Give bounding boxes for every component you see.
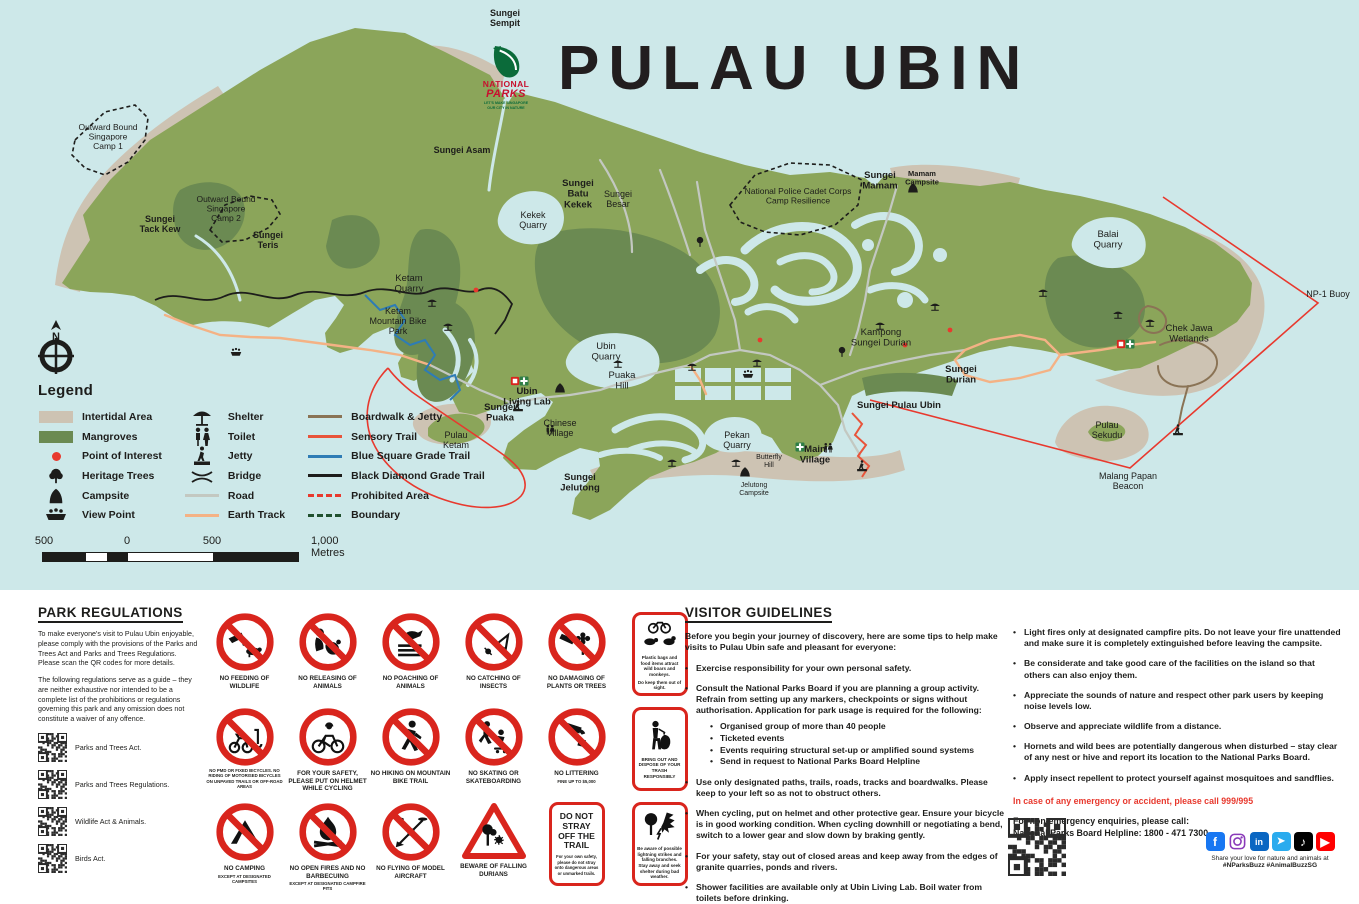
sign-label: NO LITTERING bbox=[554, 770, 598, 778]
scale-label-500-right: 500 bbox=[203, 535, 221, 547]
map-label: Sungei Asam bbox=[434, 145, 491, 155]
no-damaging-plants-sign: NO DAMAGING OF PLANTS OR TREES bbox=[535, 612, 618, 707]
sign-label: NO DAMAGING OF PLANTS OR TREES bbox=[537, 675, 617, 690]
map-label: Batu bbox=[567, 189, 588, 200]
road-line bbox=[184, 494, 220, 497]
legend-item: Campsite bbox=[38, 486, 162, 506]
sign-label: NO FEEDING OF WILDLIFE bbox=[205, 675, 285, 690]
qr-label: Birds Act. bbox=[75, 854, 105, 863]
legend-item-label: Toilet bbox=[228, 431, 255, 443]
map-label: Sungei bbox=[945, 364, 977, 375]
guideline-sub-item: Organised group of more than 40 people bbox=[710, 721, 1005, 733]
map-label: Sungei bbox=[253, 230, 283, 240]
linkedin-icon: in bbox=[1250, 832, 1269, 851]
map-label: Quarry bbox=[519, 220, 547, 230]
map-label: Campsite bbox=[905, 177, 939, 186]
guideline-item: Use only designated paths, trails, roads… bbox=[685, 777, 1005, 799]
social-caption: Share your love for nature and animals a… bbox=[1200, 855, 1340, 862]
instagram-icon bbox=[1228, 832, 1247, 851]
map-label: Kekek bbox=[564, 199, 593, 210]
falling-durians-warning-sign: BEWARE OF FALLING DURIANS bbox=[452, 802, 535, 897]
map-label: Sungei bbox=[484, 402, 516, 413]
park-regulations-title: PARK REGULATIONS bbox=[38, 605, 183, 623]
sign-label: NO FLYING OF MODEL AIRCRAFT bbox=[371, 865, 451, 880]
legend-item-label: Point of Interest bbox=[82, 450, 162, 462]
qr-code bbox=[38, 733, 67, 762]
lightning-trees-icon bbox=[640, 808, 680, 844]
map-label: Quarry bbox=[591, 352, 620, 363]
map-label: Butterfly bbox=[756, 454, 782, 461]
legend-item: View Point bbox=[38, 505, 162, 525]
guideline-item: Shower facilities are available only at … bbox=[685, 882, 1005, 904]
litter-icon bbox=[547, 707, 607, 767]
map-label: Outward Bound bbox=[78, 122, 137, 132]
legend-item-label: Intertidal Area bbox=[82, 411, 152, 423]
map-label: Hill bbox=[764, 462, 774, 469]
boardwalk-line bbox=[307, 415, 343, 418]
no-feeding-of-wildlife-sign: NO FEEDING OF WILDLIFE bbox=[203, 612, 286, 707]
legend-item-label: Shelter bbox=[228, 411, 264, 423]
no-catching-of-insects-sign: NO CATCHING OF INSECTS bbox=[452, 612, 535, 707]
guideline-item: Appreciate the sounds of nature and resp… bbox=[1013, 690, 1343, 712]
no-releasing-of-animals-sign: NO RELEASING OF ANIMALS bbox=[286, 612, 369, 707]
map-label: Sungei bbox=[490, 8, 520, 18]
catch-icon bbox=[464, 612, 524, 672]
map-label: Durian bbox=[946, 375, 976, 386]
map-label: Hill bbox=[615, 381, 628, 392]
guideline-item: For your safety, stay out of closed area… bbox=[685, 851, 1005, 873]
sign-sub-text: For your own safety, please do not stray… bbox=[555, 854, 599, 876]
legend-item: Boardwalk & Jetty bbox=[307, 407, 485, 427]
sign-sub-label: EXCEPT AT DESIGNATED CAMPFIRE PITS bbox=[289, 881, 367, 892]
logo-tagline-1: LET'S MAKE SINGAPORE bbox=[480, 101, 532, 105]
heritage-tree-icon bbox=[38, 467, 74, 485]
legend-item: Heritage Trees bbox=[38, 466, 162, 486]
map-label: Jelutong bbox=[741, 482, 768, 489]
campsite-icon bbox=[38, 487, 74, 505]
leaf-icon bbox=[489, 44, 523, 80]
qr-label: Parks and Trees Act. bbox=[75, 743, 141, 752]
legend-item-label: Boundary bbox=[351, 509, 400, 521]
qr-code-icon bbox=[38, 807, 67, 836]
sign-label: NO SKATING OR SKATEBOARDING bbox=[454, 770, 534, 785]
sign-text-box: DO NOT STRAY OFF THE TRAILFor your own s… bbox=[549, 802, 605, 886]
red-square-icon bbox=[511, 377, 519, 385]
map-label: Chek Jawa bbox=[1166, 323, 1214, 334]
map-label: Sungei Durian bbox=[851, 338, 911, 349]
map-label: Ketam bbox=[385, 306, 411, 316]
legend-item: Mangroves bbox=[38, 427, 162, 447]
social-media-block: fin➤♪▶ Share your love for nature and an… bbox=[1200, 832, 1340, 869]
do-not-stray-sign: DO NOT STRAY OFF THE TRAILFor your own s… bbox=[535, 802, 618, 897]
national-parks-logo: NATIONAL PARKS LET'S MAKE SINGAPORE OUR … bbox=[480, 44, 532, 110]
cyclist-icon bbox=[298, 707, 358, 767]
legend-item-label: Boardwalk & Jetty bbox=[351, 411, 442, 423]
map-label: NP-1 Buoy bbox=[1306, 289, 1350, 299]
shelter-icon bbox=[184, 408, 220, 426]
scale-bar-graphic bbox=[42, 552, 299, 562]
qr-code-icon bbox=[1008, 818, 1066, 876]
boar-monkey-icon bbox=[640, 617, 680, 653]
prohibition-signs-grid: NO FEEDING OF WILDLIFENO RELEASING OF AN… bbox=[203, 612, 701, 897]
map-label: Chinese bbox=[543, 418, 576, 428]
map-label: Jelutong bbox=[560, 483, 600, 494]
qr-label: Parks and Trees Regulations. bbox=[75, 780, 169, 789]
tent-icon bbox=[215, 802, 275, 862]
prohibited-area-line bbox=[307, 494, 343, 497]
legend-item-label: Black Diamond Grade Trail bbox=[351, 470, 485, 482]
regulation-qr-row: Wildlife Act & Animals. bbox=[38, 807, 200, 836]
qr-code-icon bbox=[38, 770, 67, 799]
map-label: Park bbox=[389, 326, 408, 336]
map-label: Beacon bbox=[1113, 481, 1144, 491]
guideline-item: When cycling, put on helmet and other pr… bbox=[685, 808, 1005, 842]
guideline-item: Observe and appreciate wildlife from a d… bbox=[1013, 721, 1343, 732]
regulations-paragraph-2: The following regulations serve as a gui… bbox=[38, 676, 200, 725]
damage-icon bbox=[547, 612, 607, 672]
logo-tagline-2: OUR CITY IN NATURE bbox=[480, 106, 532, 110]
no-model-aircraft-sign: NO FLYING OF MODEL AIRCRAFT bbox=[369, 802, 452, 897]
logo-text-parks: PARKS bbox=[480, 89, 532, 100]
park-regulations-section: PARK REGULATIONS To make everyone's visi… bbox=[38, 604, 200, 873]
map-label: Sungei bbox=[604, 189, 632, 199]
black-diamond-trail-line bbox=[307, 474, 343, 477]
map-label: Sungei bbox=[145, 214, 175, 224]
poi-dot bbox=[474, 288, 479, 293]
guideline-sub-item: Ticketed events bbox=[710, 733, 1005, 745]
map-label: Ubin bbox=[596, 341, 616, 352]
legend-item: Shelter bbox=[184, 407, 285, 427]
release-icon bbox=[298, 612, 358, 672]
no-hiking-sign: NO HIKING ON MOUNTAIN BIKE TRAIL bbox=[369, 707, 452, 802]
emergency-notice: In case of any emergency or accident, pl… bbox=[1013, 796, 1343, 806]
legend-item: Earth Track bbox=[184, 505, 285, 525]
qr-code bbox=[38, 807, 67, 836]
map-label: Outward Bound bbox=[196, 194, 255, 204]
map-label: Sempit bbox=[490, 18, 520, 28]
legend-item: Jetty bbox=[184, 446, 285, 466]
nparks-buzz-qr-code bbox=[1008, 818, 1066, 876]
helmet-advice-sign: FOR YOUR SAFETY, PLEASE PUT ON HELMET WH… bbox=[286, 707, 369, 802]
regulation-qr-row: Parks and Trees Regulations. bbox=[38, 770, 200, 799]
map-label: Camp Resilience bbox=[766, 196, 831, 206]
trash-person-icon bbox=[640, 719, 680, 755]
no-open-fires-sign: NO OPEN FIRES AND NO BARBECUINGEXCEPT AT… bbox=[286, 802, 369, 897]
map-label: Puaka bbox=[609, 370, 637, 381]
poi-dot bbox=[758, 338, 763, 343]
map-label: Singapore bbox=[207, 204, 246, 214]
map-label: Wetlands bbox=[1169, 334, 1209, 345]
skater-icon bbox=[464, 707, 524, 767]
pmd-icon bbox=[215, 707, 275, 767]
map-label: Sungei Pulau Ubin bbox=[857, 400, 941, 411]
legend-item: Point of Interest bbox=[38, 446, 162, 466]
toilet-icon bbox=[184, 427, 220, 447]
map-label: Sungei bbox=[864, 170, 896, 181]
fire-icon bbox=[298, 802, 358, 862]
advice-box: BRING OUT AND DISPOSE OF YOUR TRASH RESP… bbox=[632, 707, 688, 791]
map-label: Kampong bbox=[861, 327, 902, 338]
legend-item-label: Campsite bbox=[82, 490, 129, 502]
advice-box: Be aware of possible lightning strikes a… bbox=[632, 802, 688, 886]
telegram-icon: ➤ bbox=[1272, 832, 1291, 851]
visitor-guidelines-title: VISITOR GUIDELINES bbox=[685, 605, 832, 623]
guidelines-intro: Before you begin your journey of discove… bbox=[685, 631, 1005, 654]
sensory-trail-line bbox=[307, 435, 343, 438]
regulation-qr-row: Birds Act. bbox=[38, 844, 200, 873]
legend-item: Sensory Trail bbox=[307, 427, 485, 447]
red-square-icon bbox=[1117, 340, 1125, 348]
guideline-item: Consult the National Parks Board if you … bbox=[685, 683, 1005, 768]
bridge-icon bbox=[184, 468, 220, 484]
legend-item: Blue Square Grade Trail bbox=[307, 446, 485, 466]
sign-label: NO RELEASING OF ANIMALS bbox=[288, 675, 368, 690]
map-label: Campsite bbox=[739, 490, 769, 497]
map-label: Quarry bbox=[1093, 240, 1122, 251]
compass-north-icon: N bbox=[34, 318, 78, 378]
map-label: Puaka bbox=[486, 413, 515, 424]
map-label: Main bbox=[804, 444, 826, 455]
green-cross-icon bbox=[520, 377, 529, 386]
blue-square-trail-line bbox=[307, 455, 343, 458]
drone-icon bbox=[381, 802, 441, 862]
map-label: Kekek bbox=[520, 210, 546, 220]
hiker-icon bbox=[381, 707, 441, 767]
island-map: SungeiSempitOutward BoundSingaporeCamp 1… bbox=[0, 0, 1359, 590]
map-label: Mountain Bike bbox=[369, 316, 426, 326]
regulations-paragraph-1: To make everyone's visit to Pulau Ubin e… bbox=[38, 630, 200, 669]
visitor-guidelines-section: VISITOR GUIDELINES Before you begin your… bbox=[685, 604, 1005, 904]
guideline-sub-item: Send in request to National Parks Board … bbox=[710, 756, 1005, 768]
guideline-item: Hornets and wild bees are potentially da… bbox=[1013, 741, 1343, 763]
poi-dot bbox=[948, 328, 953, 333]
legend-item-label: Mangroves bbox=[82, 431, 137, 443]
sign-label: NO CAMPING bbox=[224, 865, 265, 873]
advice-text: Plastic bags and food items attract wild… bbox=[637, 655, 683, 678]
guideline-sub-item: Events requiring structural set-up or am… bbox=[710, 745, 1005, 757]
sign-label: NO POACHING OF ANIMALS bbox=[371, 675, 451, 690]
legend-item: Intertidal Area bbox=[38, 407, 162, 427]
map-label: Besar bbox=[606, 199, 630, 209]
qr-code bbox=[38, 770, 67, 799]
legend-item: Boundary bbox=[307, 505, 485, 525]
page-title: PULAU UBIN bbox=[558, 38, 1030, 100]
map-label: Pekan bbox=[724, 430, 750, 440]
legend-item-label: Road bbox=[228, 490, 254, 502]
social-hashtags: #NParksBuzz #AnimalBuzzSG bbox=[1200, 862, 1340, 869]
pulau-ubin-map-poster: { "title": "PULAU UBIN", "logo": {"line1… bbox=[0, 0, 1359, 895]
legend-item-label: Jetty bbox=[228, 450, 253, 462]
map-label: Singapore bbox=[89, 132, 128, 142]
legend-item-label: Earth Track bbox=[228, 509, 285, 521]
sign-sub-label: FINE UP TO $5,000 bbox=[557, 779, 595, 784]
tiktok-icon: ♪ bbox=[1294, 832, 1313, 851]
earth-track-line bbox=[184, 514, 220, 517]
scale-label-500-left: 500 bbox=[35, 535, 53, 547]
facebook-icon: f bbox=[1206, 832, 1225, 851]
map-label: Ketam bbox=[395, 273, 423, 284]
legend: Legend Intertidal AreaMangrovesPoint of … bbox=[38, 382, 368, 525]
map-label: Pulau bbox=[1095, 420, 1118, 430]
legend-item-label: Sensory Trail bbox=[351, 431, 417, 443]
map-label: Balai bbox=[1097, 229, 1118, 240]
sign-label: NO CATCHING OF INSECTS bbox=[454, 675, 534, 690]
map-header: NATIONAL PARKS LET'S MAKE SINGAPORE OUR … bbox=[480, 38, 1030, 110]
point-of-interest-icon bbox=[38, 452, 74, 461]
sign-sub-label: EXCEPT AT DESIGNATED CAMPSITES bbox=[206, 874, 284, 885]
map-label: Ubin bbox=[516, 386, 537, 397]
scale-label-0: 0 bbox=[124, 535, 130, 547]
map-label: Village bbox=[547, 428, 574, 438]
legend-item-label: Bridge bbox=[228, 470, 261, 482]
legend-item: Road bbox=[184, 486, 285, 506]
guideline-item: Exercise responsibility for your own per… bbox=[685, 663, 1005, 674]
sign-label: NO OPEN FIRES AND NO BARBECUING bbox=[288, 865, 368, 880]
sign-label: FOR YOUR SAFETY, PLEASE PUT ON HELMET WH… bbox=[288, 770, 368, 793]
map-label: Malang Papan bbox=[1099, 471, 1157, 481]
no-littering-sign: NO LITTERINGFINE UP TO $5,000 bbox=[535, 707, 618, 802]
regulation-qr-row: Parks and Trees Act. bbox=[38, 733, 200, 762]
advice-text: BRING OUT AND DISPOSE OF YOUR TRASH RESP… bbox=[637, 757, 683, 780]
map-label: Camp 1 bbox=[93, 141, 123, 151]
viewpoint-icon bbox=[38, 507, 74, 523]
map-label: Village bbox=[800, 455, 830, 466]
map-label: Tack Kew bbox=[140, 224, 182, 234]
guideline-item: Apply insect repellent to protect yourse… bbox=[1013, 773, 1343, 784]
green-cross-icon bbox=[1126, 340, 1135, 349]
guideline-item: Be considerate and take good care of the… bbox=[1013, 658, 1343, 680]
legend-item-label: Prohibited Area bbox=[351, 490, 429, 502]
legend-item: Bridge bbox=[184, 466, 285, 486]
legend-item-label: Heritage Trees bbox=[82, 470, 154, 482]
sign-label: NO HIKING ON MOUNTAIN BIKE TRAIL bbox=[371, 770, 451, 785]
legend-item-label: View Point bbox=[82, 509, 135, 521]
qr-code bbox=[38, 844, 67, 873]
scale-bar: 500 0 500 1,000 Metres bbox=[38, 535, 368, 565]
green-cross-icon bbox=[796, 443, 805, 452]
boundary-line bbox=[307, 514, 343, 517]
qr-code-icon bbox=[38, 733, 67, 762]
no-pmd-sign: NO PMD OR FIXED BICYCLES. NO RIDING OF M… bbox=[203, 707, 286, 802]
sign-main-text: DO NOT STRAY OFF THE TRAIL bbox=[555, 812, 599, 852]
legend-item-label: Blue Square Grade Trail bbox=[351, 450, 470, 462]
map-label: Mamam bbox=[862, 181, 897, 192]
no-camping-sign: NO CAMPINGEXCEPT AT DESIGNATED CAMPSITES bbox=[203, 802, 286, 897]
feeding-icon bbox=[215, 612, 275, 672]
guideline-item: Light fires only at designated campfire … bbox=[1013, 627, 1343, 649]
map-label: Sungei bbox=[564, 472, 596, 483]
qr-label: Wildlife Act & Animals. bbox=[75, 817, 146, 826]
no-poaching-of-animals-sign: NO POACHING OF ANIMALS bbox=[369, 612, 452, 707]
visitor-guidelines-column-2: Light fires only at designated campfire … bbox=[1013, 618, 1343, 839]
advice-text-2: Do keep them out of sight. bbox=[637, 680, 683, 691]
map-label: Teris bbox=[258, 240, 279, 250]
map-label: Camp 2 bbox=[211, 213, 241, 223]
jetty-icon bbox=[184, 446, 220, 466]
legend-item: Toilet bbox=[184, 427, 285, 447]
qr-code-icon bbox=[38, 844, 67, 873]
legend-item: Black Diamond Grade Trail bbox=[307, 466, 485, 486]
poach-icon bbox=[381, 612, 441, 672]
youtube-icon: ▶ bbox=[1316, 832, 1335, 851]
scale-label-1000: 1,000 Metres bbox=[311, 535, 349, 559]
durian-icon bbox=[461, 802, 527, 860]
map-label: Sekudu bbox=[1092, 430, 1123, 440]
info-panel: PARK REGULATIONS To make everyone's visi… bbox=[0, 590, 1359, 895]
advice-box: Plastic bags and food items attract wild… bbox=[632, 612, 688, 696]
sign-label: BEWARE OF FALLING DURIANS bbox=[454, 863, 534, 878]
map-label: Quarry bbox=[394, 284, 423, 295]
no-skating-sign: NO SKATING OR SKATEBOARDING bbox=[452, 707, 535, 802]
map-label: National Police Cadet Corps bbox=[745, 186, 852, 196]
advice-text: Be aware of possible lightning strikes a… bbox=[637, 846, 683, 880]
legend-item: Prohibited Area bbox=[307, 486, 485, 506]
mangroves-swatch bbox=[38, 431, 74, 443]
map-label: Quarry bbox=[723, 440, 751, 450]
sign-sub-label: NO PMD OR FIXED BICYCLES. NO RIDING OF M… bbox=[206, 768, 284, 789]
legend-title: Legend bbox=[38, 382, 368, 399]
intertidal-swatch bbox=[38, 411, 74, 423]
map-label: Sungei bbox=[562, 178, 594, 189]
